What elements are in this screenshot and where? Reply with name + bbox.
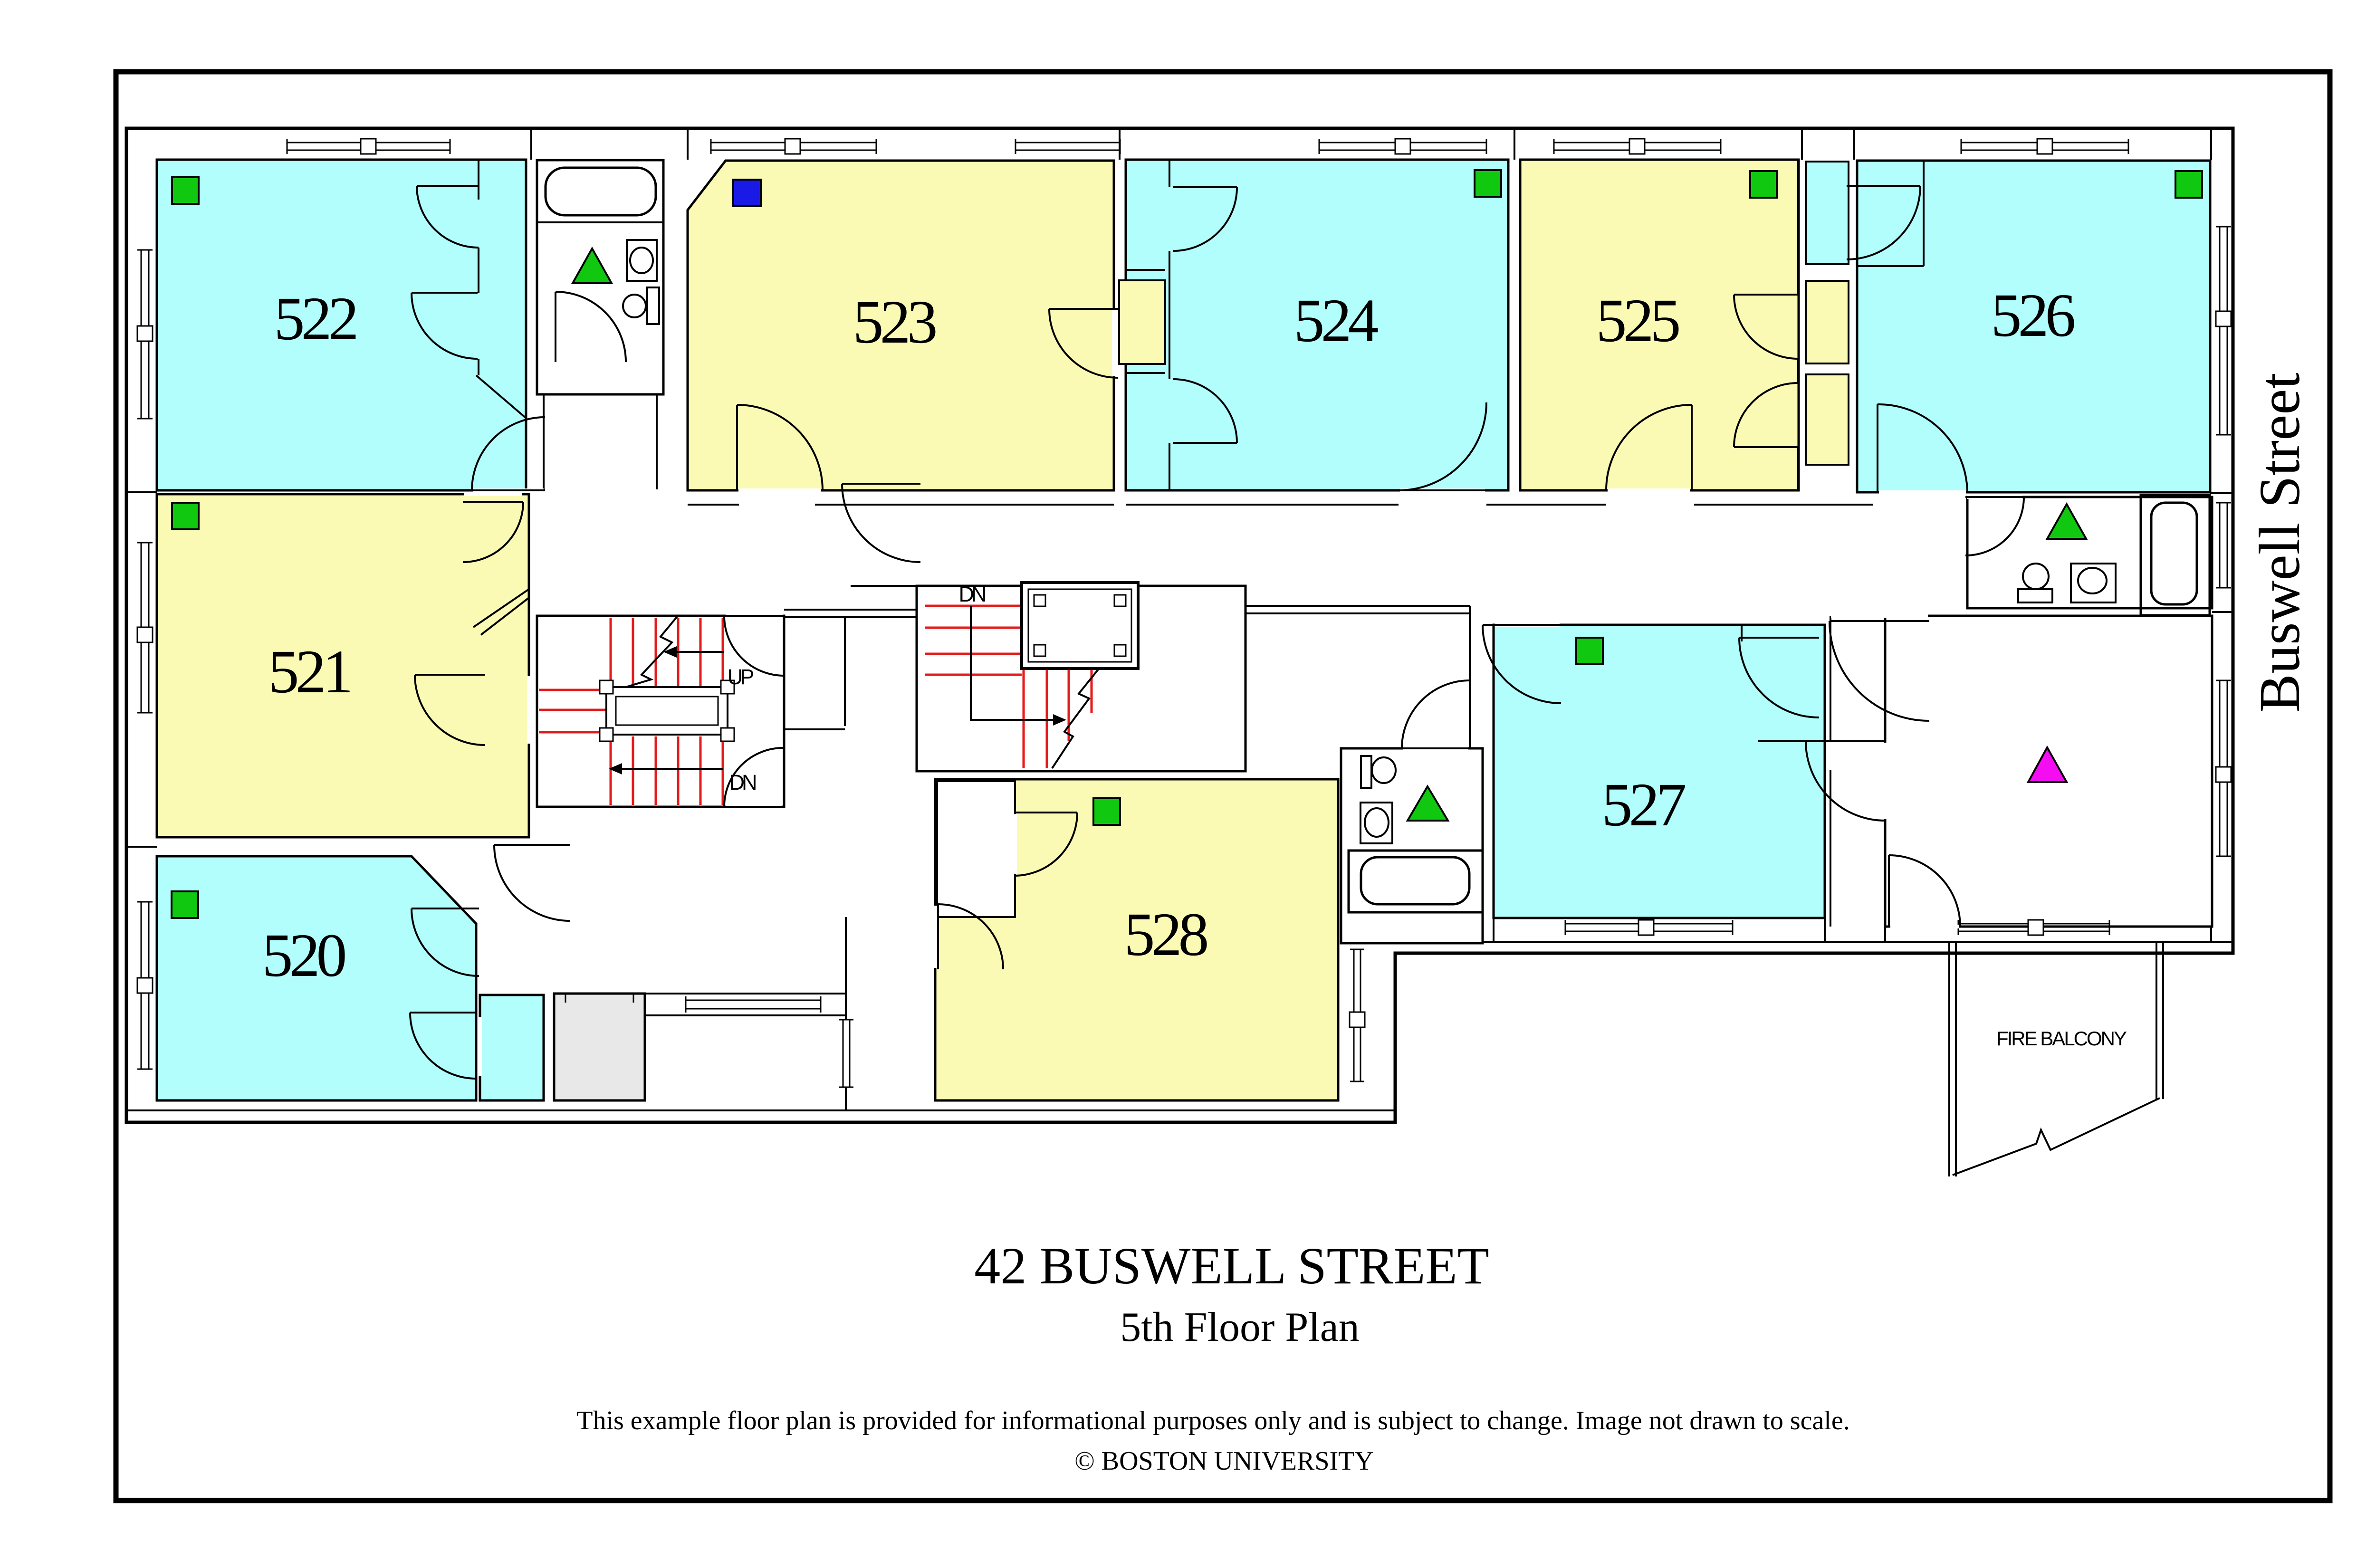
svg-text:5th Floor Plan: 5th Floor Plan	[1120, 1304, 1360, 1350]
svg-text:521: 521	[268, 638, 350, 706]
svg-text:523: 523	[853, 288, 936, 356]
svg-text:This example floor plan is pro: This example floor plan is provided for …	[576, 1406, 1850, 1435]
svg-text:522: 522	[274, 285, 356, 353]
svg-text:Buswell Street: Buswell Street	[2248, 373, 2312, 712]
svg-text:42 BUSWELL STREET: 42 BUSWELL STREET	[974, 1237, 1489, 1295]
svg-text:520: 520	[262, 921, 345, 990]
svg-text:524: 524	[1294, 287, 1378, 355]
svg-text:© BOSTON UNIVERSITY: © BOSTON UNIVERSITY	[1074, 1446, 1374, 1476]
svg-text:526: 526	[1991, 281, 2075, 350]
svg-text:UP: UP	[728, 665, 753, 689]
svg-text:FIRE BALCONY: FIRE BALCONY	[1996, 1027, 2127, 1050]
svg-text:528: 528	[1124, 900, 1207, 969]
svg-text:527: 527	[1602, 771, 1686, 839]
svg-text:DN: DN	[959, 582, 985, 606]
svg-text:525: 525	[1596, 287, 1679, 355]
